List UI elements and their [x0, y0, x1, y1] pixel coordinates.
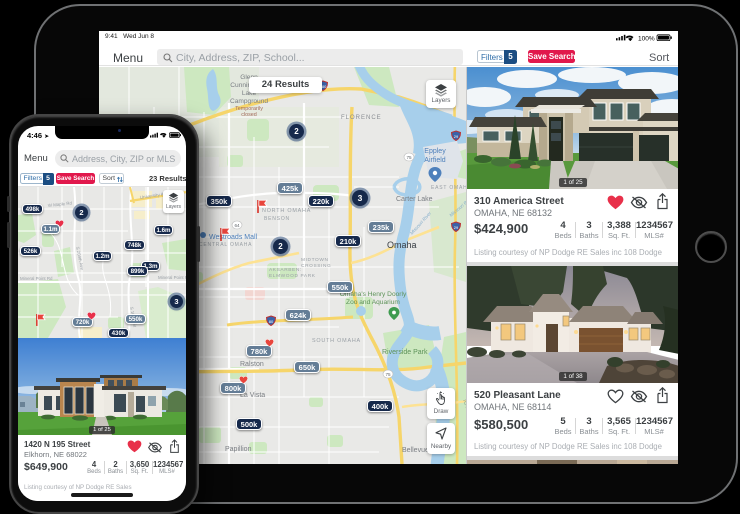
svg-text:Airfield: Airfield: [424, 157, 446, 164]
svg-text:CROSSING: CROSSING: [301, 263, 331, 269]
svg-text:closed: closed: [241, 112, 257, 118]
svg-text:NORTH OMAHA: NORTH OMAHA: [262, 208, 311, 214]
svg-text:FLORENCE: FLORENCE: [341, 115, 382, 121]
svg-text:29: 29: [454, 225, 459, 230]
svg-text:Carter Lake: Carter Lake: [396, 196, 433, 203]
svg-text:29: 29: [454, 134, 459, 139]
svg-text:64: 64: [234, 223, 240, 228]
svg-text:Eppley: Eppley: [424, 148, 446, 155]
svg-text:AKSARBEN:: AKSARBEN:: [269, 267, 302, 273]
svg-text:BENSON: BENSON: [264, 216, 290, 222]
svg-text:MIDTOWN: MIDTOWN: [301, 257, 329, 263]
svg-text:75: 75: [406, 155, 412, 160]
svg-text:Mineral Point Rd: Mineral Point Rd: [20, 276, 53, 281]
svg-text:Campground: Campground: [230, 98, 268, 105]
svg-text:Westroads Mall: Westroads Mall: [209, 234, 258, 241]
svg-text:Riverside Park: Riverside Park: [382, 349, 428, 356]
svg-text:Ralston: Ralston: [240, 361, 264, 368]
svg-text:SOUTH OMAHA: SOUTH OMAHA: [312, 338, 361, 344]
svg-text:75: 75: [385, 372, 391, 377]
svg-text:80: 80: [269, 319, 274, 324]
svg-text:Omaha: Omaha: [387, 240, 417, 250]
svg-text:ELMWOOD PARK: ELMWOOD PARK: [269, 273, 316, 279]
svg-text:Zoo and Aquarium: Zoo and Aquarium: [346, 299, 400, 306]
svg-text:Mineral Point Rd: Mineral Point Rd: [158, 275, 186, 280]
svg-text:CENTRAL OMAHA: CENTRAL OMAHA: [199, 242, 252, 248]
svg-text:Papillion: Papillion: [225, 446, 252, 453]
svg-text:Bellevue: Bellevue: [402, 447, 429, 454]
svg-text:EAST OMAHA: EAST OMAHA: [431, 185, 466, 191]
